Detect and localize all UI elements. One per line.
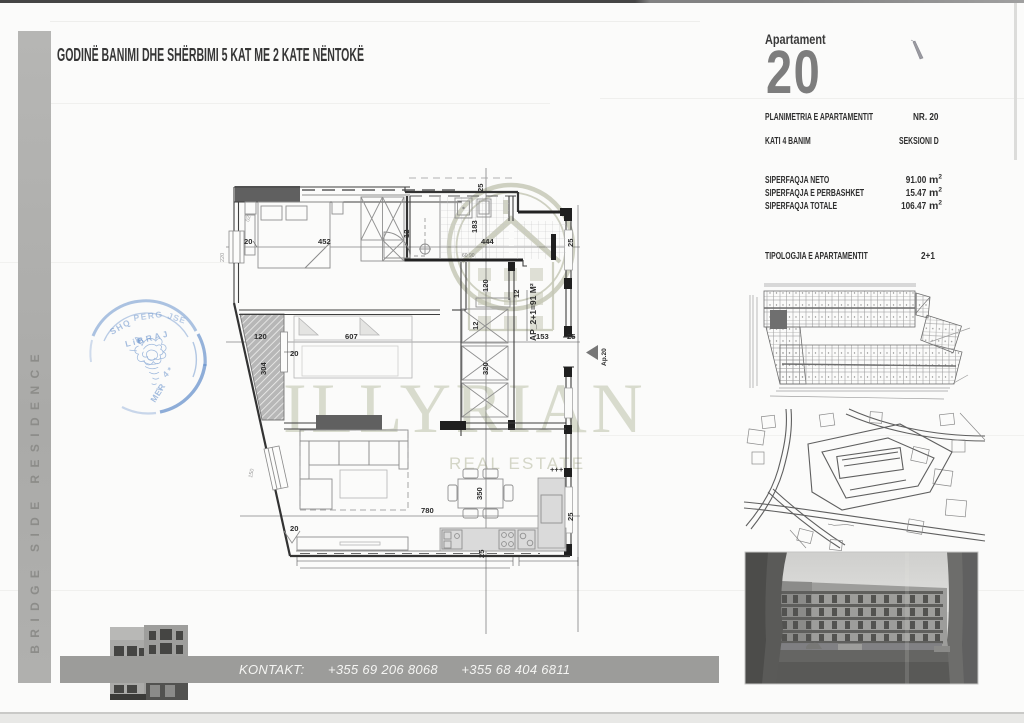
svg-text:ILLYRIAN: ILLYRIAN [283, 370, 647, 448]
svg-text:12: 12 [512, 290, 521, 298]
svg-text:183: 183 [470, 220, 479, 233]
svg-text:25: 25 [477, 549, 486, 558]
svg-text:25: 25 [476, 183, 485, 192]
svg-text:780: 780 [421, 506, 434, 515]
svg-text:220: 220 [220, 253, 226, 262]
svg-text:AP_2+1=91 M²: AP_2+1=91 M² [528, 283, 538, 341]
svg-text:20: 20 [290, 349, 298, 358]
svg-text:12: 12 [402, 230, 411, 238]
svg-text:20: 20 [244, 237, 252, 246]
svg-text:+++: +++ [550, 465, 564, 474]
svg-text:SHQ: SHQ [108, 317, 133, 337]
svg-text:304: 304 [259, 362, 268, 375]
svg-text:25: 25 [566, 238, 575, 247]
svg-text:120: 120 [481, 279, 490, 292]
svg-text:350: 350 [475, 487, 484, 500]
svg-text:452: 452 [318, 237, 331, 246]
svg-text:02: 02 [245, 215, 252, 222]
svg-text:607: 607 [345, 332, 358, 341]
svg-text:120: 120 [254, 332, 267, 341]
svg-text:444: 444 [481, 237, 494, 246]
svg-text:12: 12 [471, 322, 480, 330]
svg-text:Ap.20: Ap.20 [601, 348, 608, 366]
svg-text:150: 150 [248, 468, 256, 478]
svg-text:4 *: 4 * [160, 365, 175, 380]
svg-text:PERG: PERG [133, 309, 164, 323]
svg-text:25: 25 [567, 332, 576, 341]
svg-text:25: 25 [566, 512, 575, 521]
svg-text:MER: MER [148, 381, 167, 404]
svg-text:320: 320 [481, 362, 490, 375]
svg-text:20: 20 [290, 524, 298, 533]
svg-text:60 90: 60 90 [462, 253, 475, 259]
